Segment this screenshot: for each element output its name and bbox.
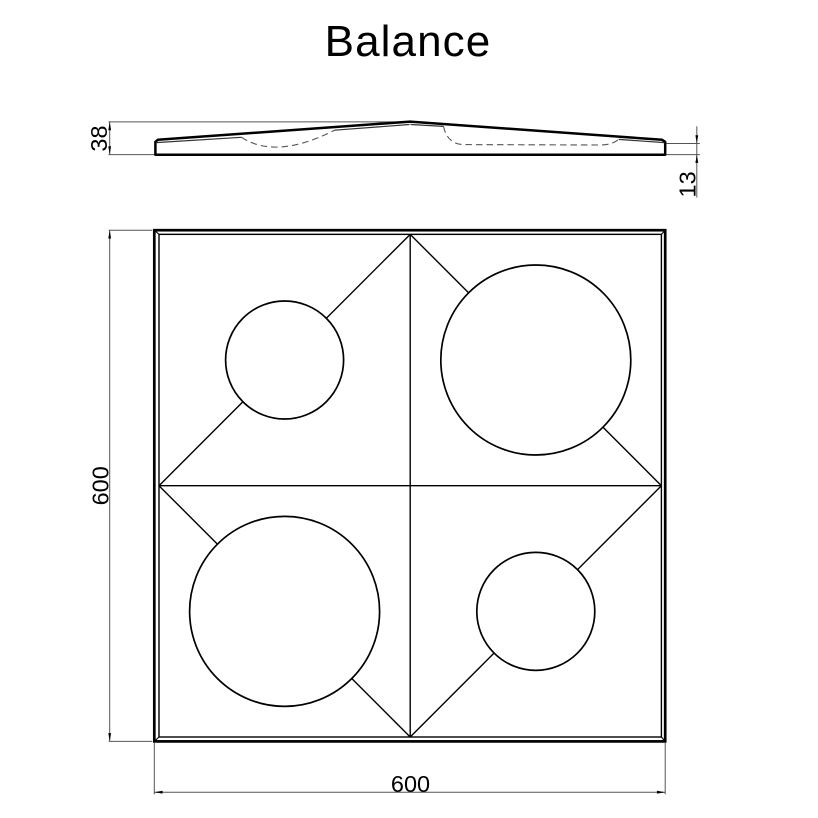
svg-text:13: 13 [674, 171, 700, 197]
svg-text:600: 600 [391, 771, 430, 797]
svg-text:38: 38 [86, 125, 112, 151]
svg-text:Balance: Balance [325, 17, 492, 66]
svg-text:600: 600 [88, 466, 114, 505]
